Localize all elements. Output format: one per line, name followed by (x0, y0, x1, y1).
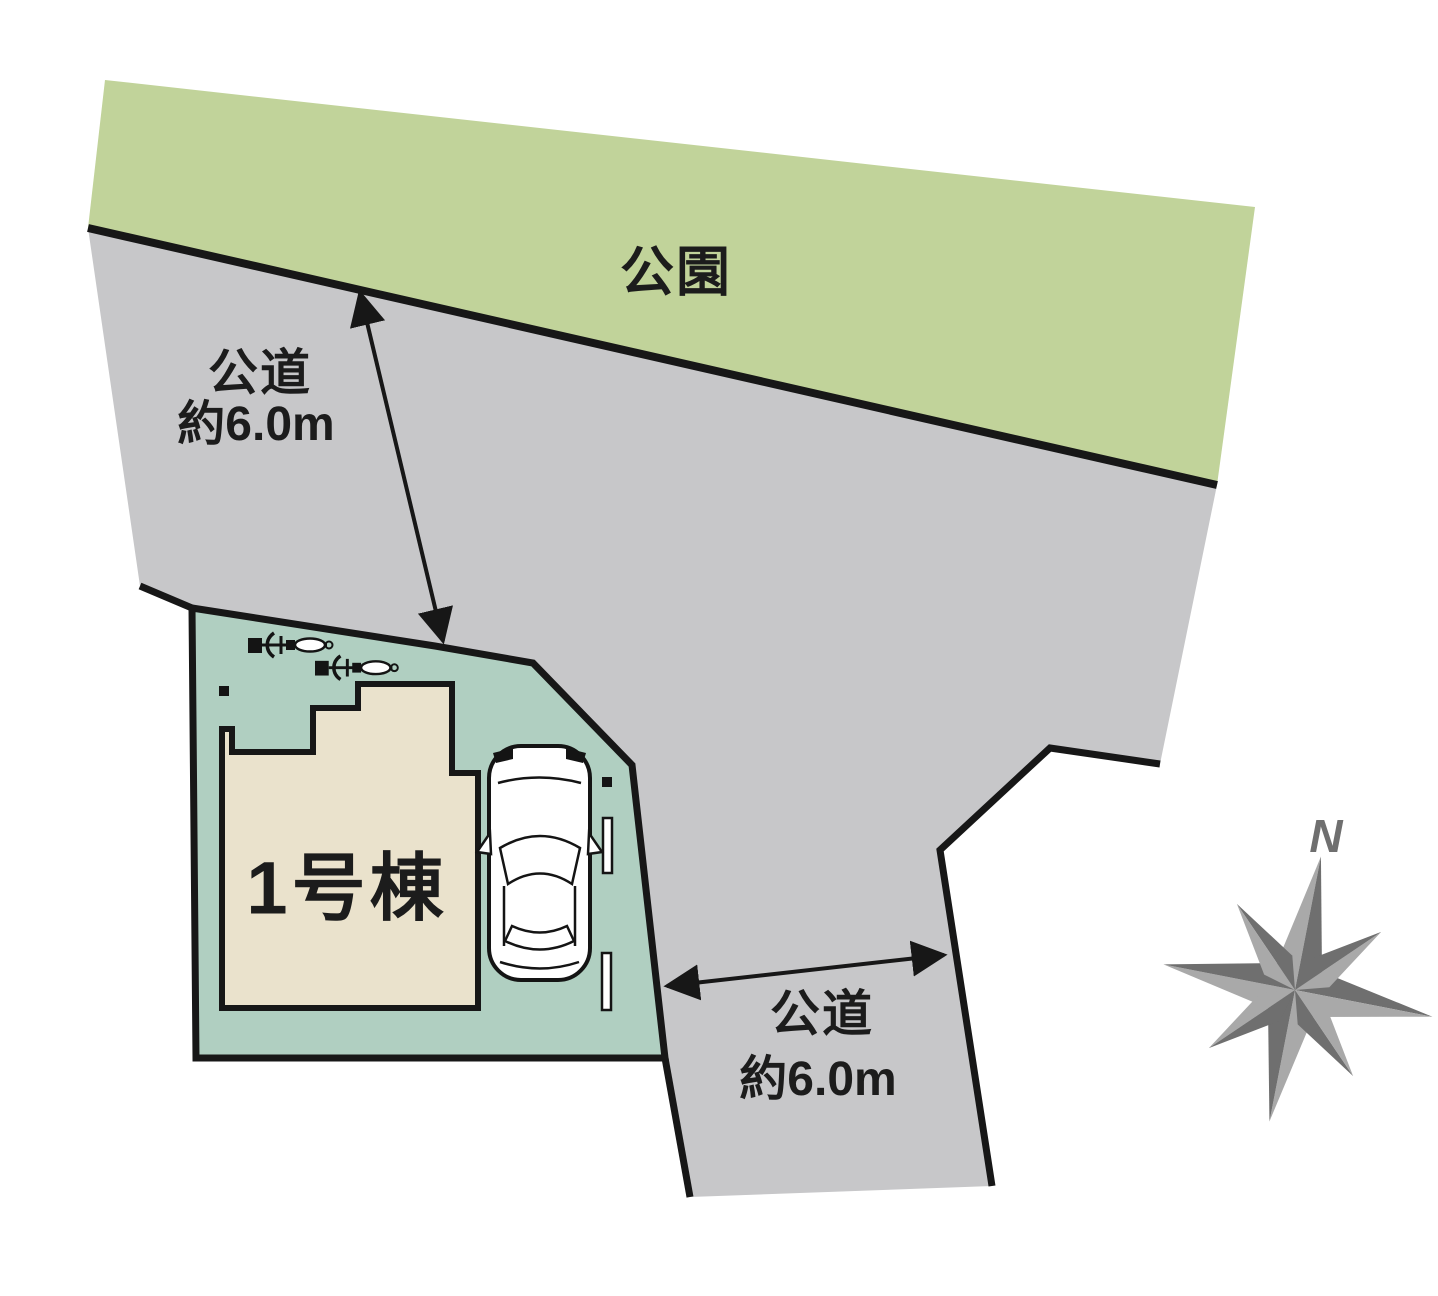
boundary-marker-icon (219, 686, 229, 696)
building-label: 1号棟 (246, 829, 447, 936)
site-plan-drawing (0, 0, 1438, 1296)
site-plan-canvas: 公園 公道 約6.0m 公道 約6.0m 1号棟 N (0, 0, 1438, 1296)
road-east-width: 約6.0m (739, 1039, 896, 1109)
parking-dash (602, 953, 611, 1010)
park-label: 公園 (620, 228, 732, 307)
road-east-name: 公道 (770, 974, 874, 1046)
car-icon (477, 746, 602, 980)
parking-dash (603, 818, 612, 873)
road-north-width: 約6.0m (177, 384, 334, 454)
boundary-marker-icon (602, 777, 612, 787)
compass-rose-icon (1138, 831, 1438, 1148)
compass-north-label: N (1309, 809, 1344, 863)
